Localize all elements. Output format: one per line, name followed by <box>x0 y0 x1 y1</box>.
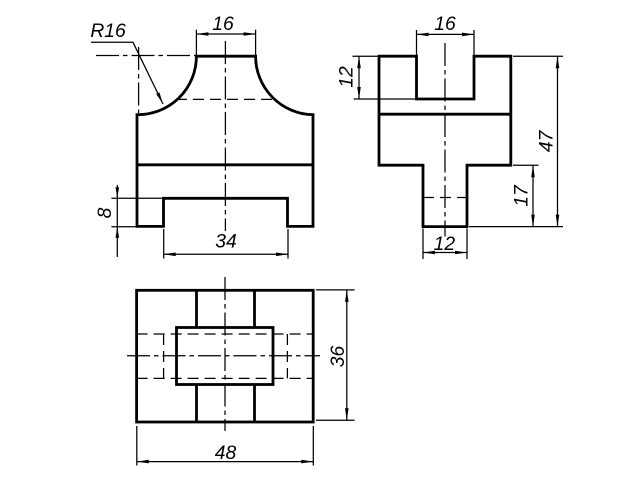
svg-text:8: 8 <box>95 207 116 218</box>
svg-text:36: 36 <box>328 346 349 368</box>
svg-text:16: 16 <box>434 14 456 35</box>
svg-text:34: 34 <box>215 232 236 253</box>
svg-text:17: 17 <box>511 184 532 207</box>
svg-text:12: 12 <box>337 66 358 88</box>
svg-text:R16: R16 <box>90 21 126 42</box>
svg-text:47: 47 <box>537 129 558 152</box>
svg-text:48: 48 <box>215 443 237 464</box>
svg-text:12: 12 <box>434 234 456 255</box>
svg-text:16: 16 <box>212 14 234 35</box>
